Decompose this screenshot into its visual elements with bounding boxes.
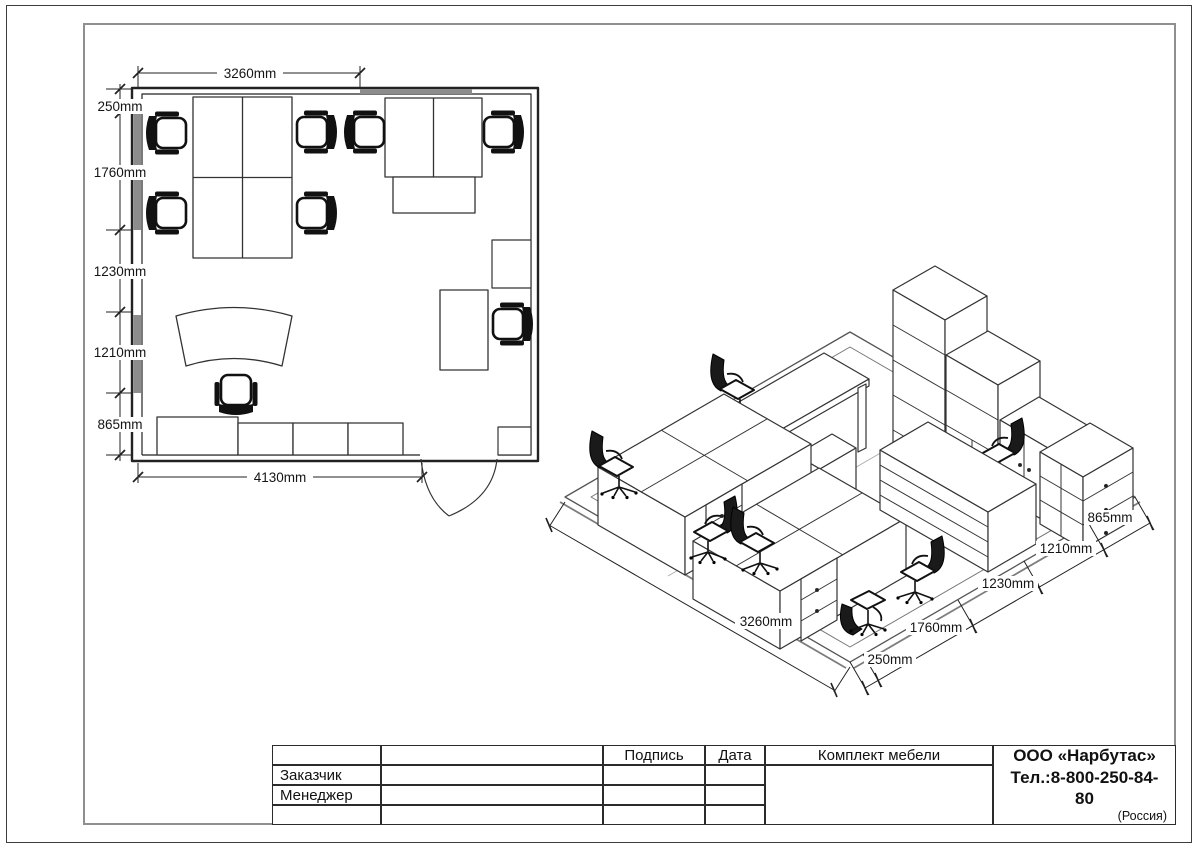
title-cell-blank [705, 805, 765, 825]
customer-name-field [381, 745, 603, 765]
furniture-set-field [765, 765, 993, 825]
date-header: Дата [705, 745, 765, 765]
date-field [705, 765, 765, 785]
title-block: Заказчик Менеджер Подпись Дата Комплект … [272, 745, 1176, 825]
dimension-label: 3260mm [740, 614, 793, 629]
dimension-label: 1230mm [94, 264, 147, 279]
company-info: ООО «Нарбутас» Тел.:8-800-250-84-80 (Рос… [993, 745, 1176, 825]
reception-desk [176, 308, 292, 367]
double-desk [385, 98, 482, 213]
title-cell-blank [272, 745, 381, 765]
furniture-set-header: Комплект мебели [765, 745, 993, 765]
dimension-label: 250mm [97, 99, 142, 114]
dimension-label: 4130mm [254, 470, 307, 485]
drawing-canvas: 3260mm 250mm 1760mm 1230mm 1210mm 865mm … [0, 0, 1200, 850]
dimension-label: 1210mm [1040, 541, 1093, 556]
side-desk [440, 290, 488, 370]
company-country: (Россия) [1002, 809, 1167, 825]
company-name: ООО «Нарбутас» [1002, 745, 1167, 766]
dimension-label: 1760mm [94, 165, 147, 180]
title-cell-blank [381, 805, 603, 825]
date-field [705, 785, 765, 805]
floor-plan: 3260mm 250mm 1760mm 1230mm 1210mm 865mm … [92, 65, 538, 516]
manager-label: Менеджер [272, 785, 381, 805]
wall-niche [492, 240, 531, 288]
customer-name-field [381, 765, 603, 785]
dimension-label: 1210mm [94, 345, 147, 360]
company-phone: Тел.:8-800-250-84-80 [1002, 767, 1167, 810]
manager-name-field [381, 785, 603, 805]
signature-field [603, 765, 705, 785]
dimension-label: 3260mm [224, 66, 277, 81]
drawing-sheet: 3260mm 250mm 1760mm 1230mm 1210mm 865mm … [0, 0, 1200, 850]
dimension-label: 865mm [1087, 510, 1132, 525]
title-cell-blank [603, 805, 705, 825]
signature-field [603, 785, 705, 805]
signature-header: Подпись [603, 745, 705, 765]
dimension-label: 1230mm [982, 576, 1035, 591]
window-strip [360, 90, 472, 95]
isometric-view: 3260mm 865mm 1210mm 1230mm 1760mm 250mm [546, 266, 1154, 697]
cabinet-row [157, 417, 403, 455]
dimension-label: 865mm [97, 417, 142, 432]
dimension-label: 1760mm [910, 620, 963, 635]
title-cell-blank [272, 805, 381, 825]
quad-workstation [193, 97, 292, 258]
customer-label: Заказчик [272, 765, 381, 785]
dimension-label: 250mm [867, 652, 912, 667]
wall-niche [498, 427, 531, 455]
door-swing [421, 459, 497, 516]
